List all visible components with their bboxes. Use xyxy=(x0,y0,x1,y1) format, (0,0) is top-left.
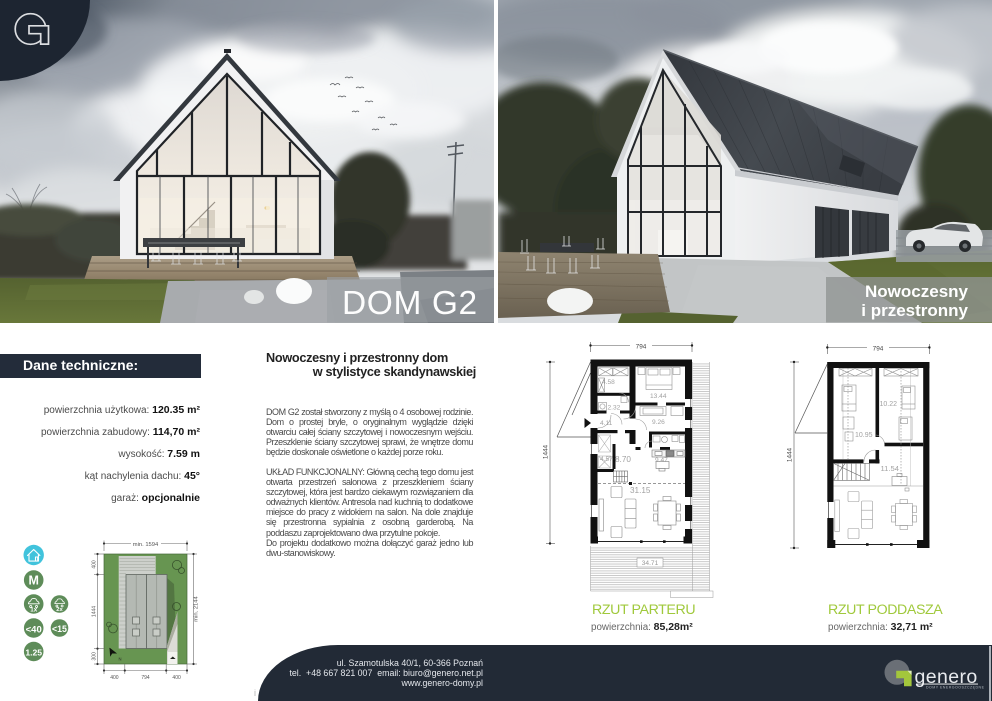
svg-text:400: 400 xyxy=(92,560,98,569)
svg-text:1444: 1444 xyxy=(787,447,794,462)
svg-text:4.58: 4.58 xyxy=(602,379,615,386)
svg-text:34.71: 34.71 xyxy=(642,560,659,567)
svg-text:13.44: 13.44 xyxy=(650,393,667,400)
svg-text:1444: 1444 xyxy=(92,606,98,617)
svg-text:DOMY ENERGOOSZCZĘDNE: DOMY ENERGOOSZCZĘDNE xyxy=(926,685,985,689)
svg-text:11.54: 11.54 xyxy=(881,464,899,473)
svg-text:2x: 2x xyxy=(56,607,63,613)
svg-text:i przestronny: i przestronny xyxy=(861,301,968,320)
svg-text:794: 794 xyxy=(636,343,647,350)
svg-text:2.32: 2.32 xyxy=(608,405,621,412)
svg-text:<40: <40 xyxy=(26,624,42,635)
svg-text:1x: 1x xyxy=(30,607,37,614)
svg-text:400: 400 xyxy=(110,675,119,681)
svg-text:794: 794 xyxy=(141,675,150,681)
svg-text:1.25: 1.25 xyxy=(25,647,42,657)
svg-text:31.15: 31.15 xyxy=(630,486,651,495)
svg-text:M: M xyxy=(28,574,38,588)
svg-text:9.26: 9.26 xyxy=(652,419,665,426)
svg-text:1444: 1444 xyxy=(543,444,550,459)
svg-text:794: 794 xyxy=(873,345,884,352)
svg-text:10.22: 10.22 xyxy=(880,401,898,408)
svg-text:N: N xyxy=(119,657,122,662)
svg-text:10.95: 10.95 xyxy=(855,432,873,439)
svg-text:4.57: 4.57 xyxy=(600,456,613,463)
svg-text:<15: <15 xyxy=(52,624,67,634)
svg-text:min. 1594: min. 1594 xyxy=(133,542,159,548)
svg-text:DOM G2: DOM G2 xyxy=(342,285,478,322)
svg-text:4.11: 4.11 xyxy=(600,420,613,427)
svg-text:8.70: 8.70 xyxy=(615,455,631,464)
svg-text:300: 300 xyxy=(92,652,98,661)
svg-text:400: 400 xyxy=(172,675,181,681)
svg-text:Nowoczesny: Nowoczesny xyxy=(865,282,969,301)
svg-text:min. 2144: min. 2144 xyxy=(194,596,200,622)
